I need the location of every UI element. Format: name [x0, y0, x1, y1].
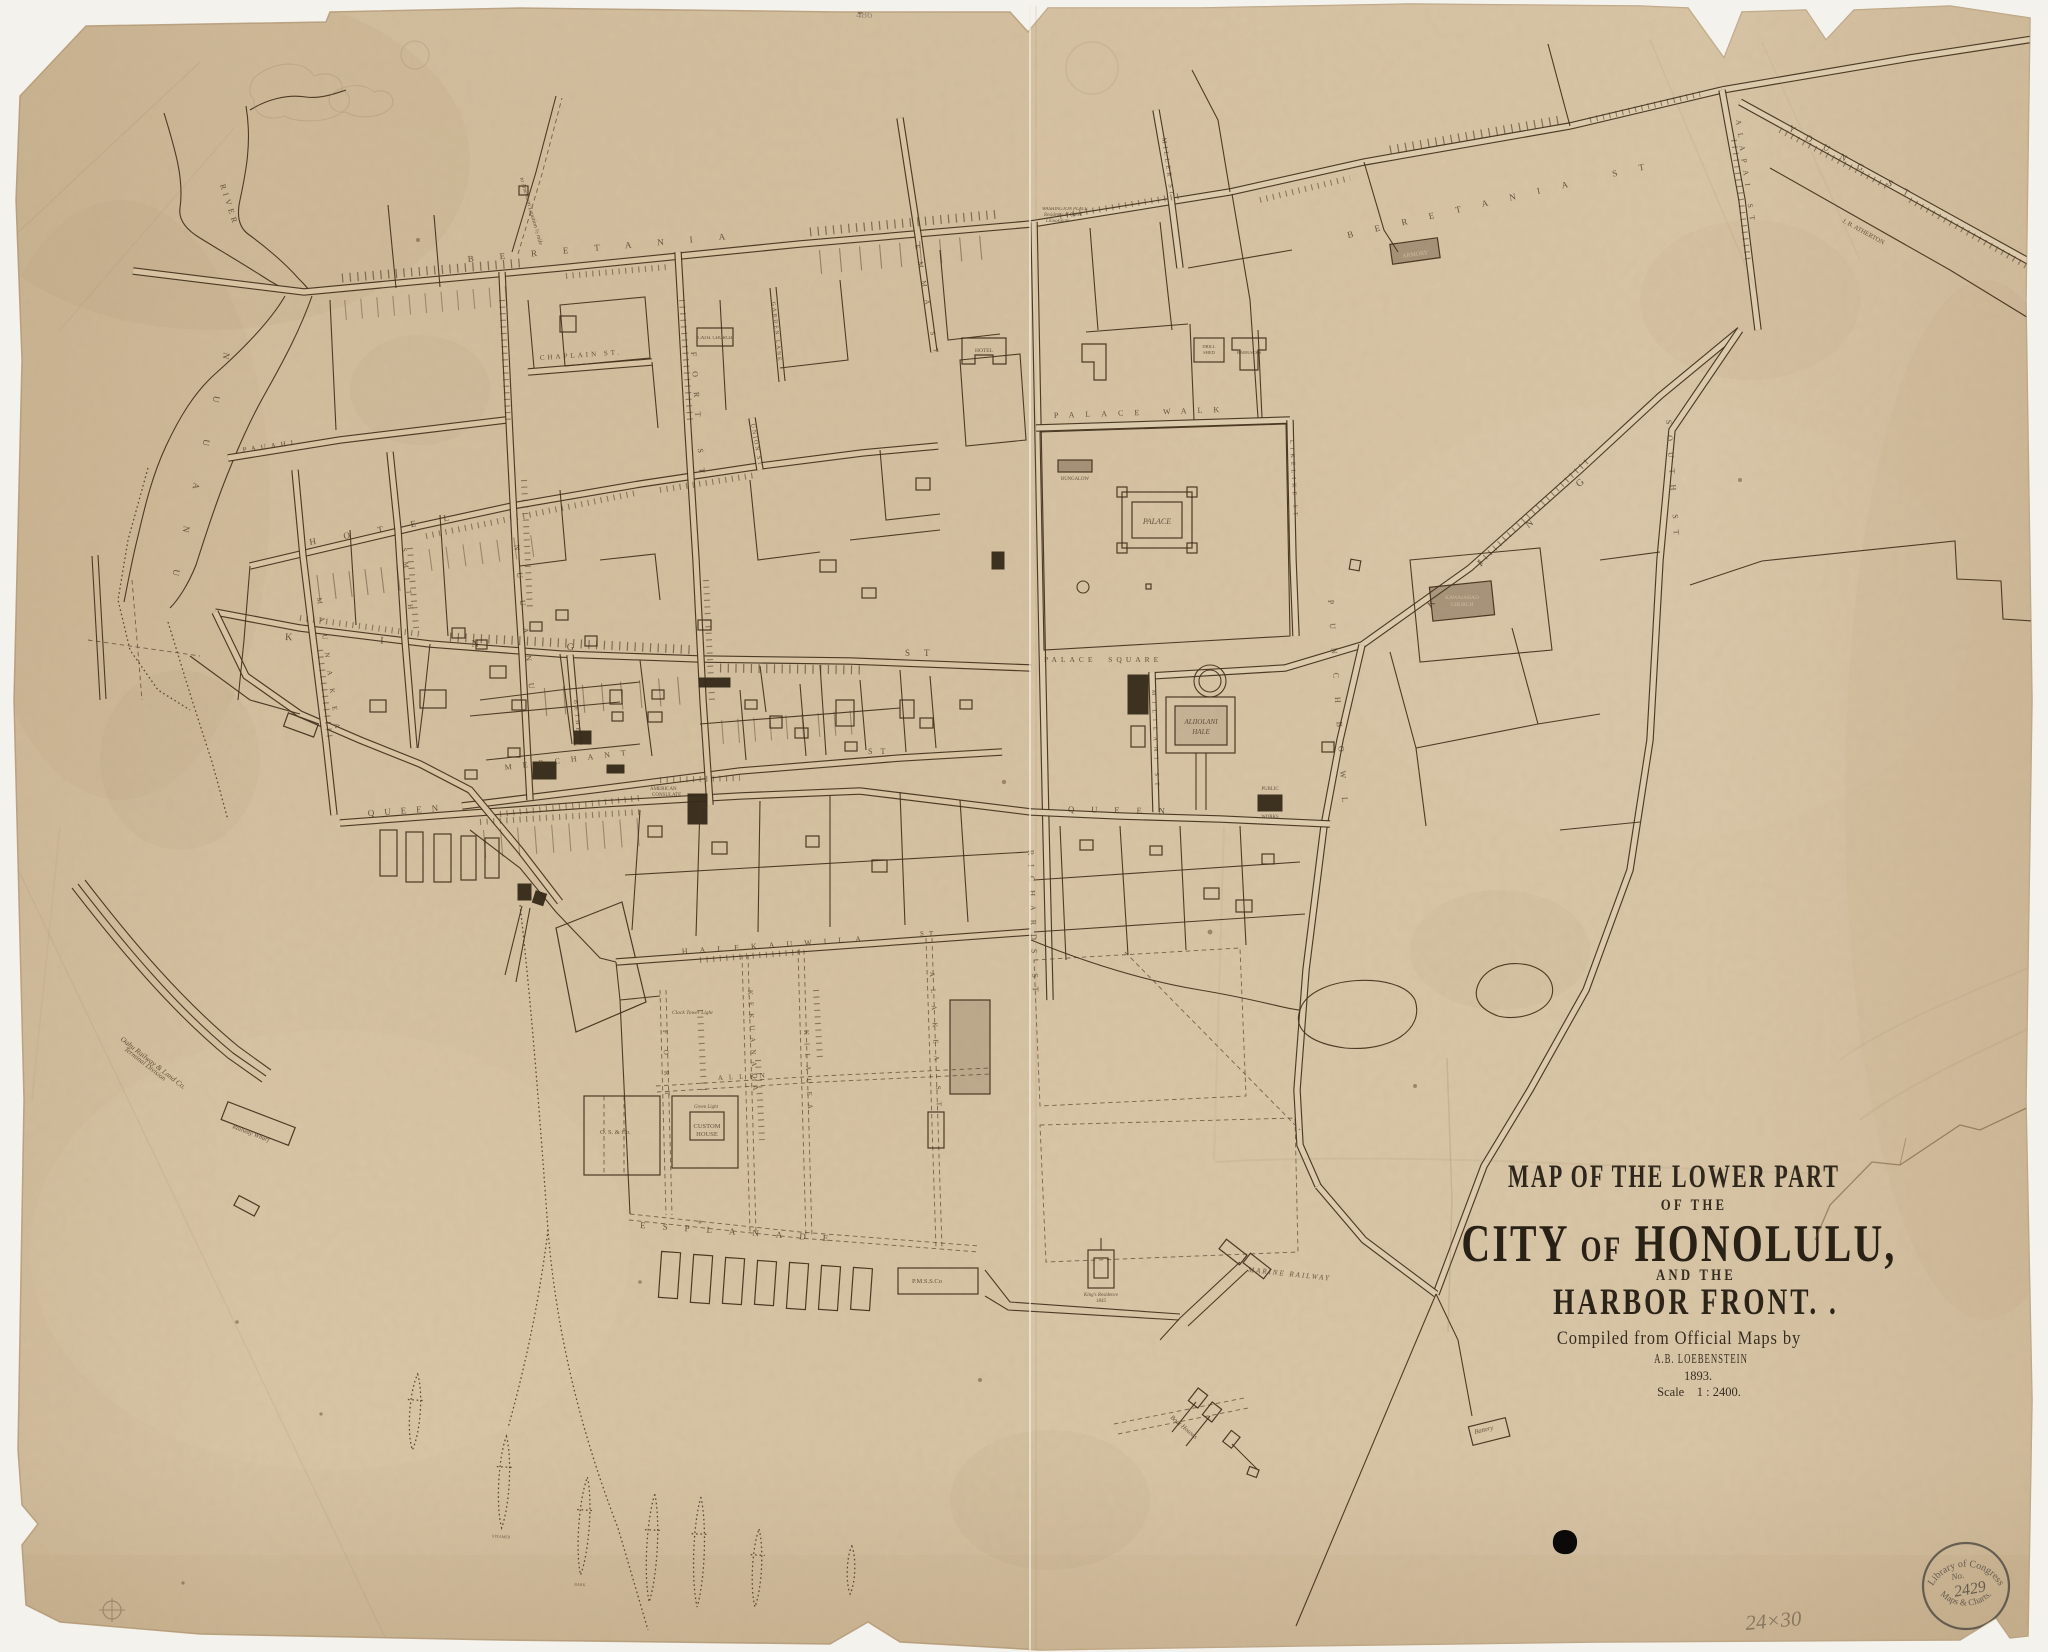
svg-text:CHURCH: CHURCH: [1451, 602, 1474, 608]
svg-text:WASHINGTON PLACE: WASHINGTON PLACE: [1042, 207, 1088, 212]
svg-text:CITY OF HONOLULU,: CITY OF HONOLULU,: [1461, 1215, 1896, 1274]
svg-text:ST: ST: [905, 648, 944, 658]
svg-text:QUEEN: QUEEN: [1068, 804, 1182, 816]
svg-text:1893.: 1893.: [1684, 1369, 1712, 1383]
svg-text:WORKS: WORKS: [1261, 815, 1279, 820]
svg-text:ST.: ST.: [920, 930, 944, 938]
svg-text:BARK: BARK: [574, 1581, 586, 1587]
svg-text:P.M.S.S.Co: P.M.S.S.Co: [912, 1278, 942, 1285]
svg-text:HALE: HALE: [1191, 728, 1210, 736]
svg-text:HARBOR FRONT. .: HARBOR FRONT. .: [1553, 1282, 1839, 1323]
svg-text:ALIIOLANI: ALIIOLANI: [1183, 718, 1218, 726]
svg-text:Clock Tower Light: Clock Tower Light: [672, 1010, 713, 1016]
svg-text:Scale 1 : 2400.: Scale 1 : 2400.: [1657, 1385, 1741, 1399]
svg-text:BUNGALOW: BUNGALOW: [1061, 477, 1089, 482]
svg-text:KAWAIAHAO: KAWAIAHAO: [1445, 595, 1479, 601]
svg-text:Compiled from Official Maps by: Compiled from Official Maps by: [1557, 1327, 1801, 1348]
svg-text:DRILL: DRILL: [1202, 344, 1215, 349]
svg-text:O. S. & Co.: O. S. & Co.: [600, 1129, 631, 1136]
svg-text:STEAMER: STEAMER: [492, 1533, 511, 1539]
svg-text:SHED: SHED: [1203, 350, 1216, 355]
svg-text:HOUSE: HOUSE: [696, 1131, 718, 1138]
svg-text:1845: 1845: [1096, 1299, 1107, 1304]
svg-text:PUBLIC: PUBLIC: [1261, 787, 1278, 792]
svg-text:ST: ST: [868, 747, 893, 756]
svg-text:PALACE SQUARE: PALACE SQUARE: [1044, 655, 1162, 664]
svg-text:MAP OF THE LOWER PART: MAP OF THE LOWER PART: [1508, 1159, 1840, 1195]
svg-text:AMERICAN: AMERICAN: [650, 787, 677, 792]
svg-text:CUSTOM: CUSTOM: [694, 1123, 721, 1130]
svg-text:Green Light: Green Light: [694, 1105, 719, 1110]
svg-text:24×30: 24×30: [1744, 1606, 1803, 1635]
svg-text:Liliuokalani: Liliuokalani: [1045, 219, 1070, 224]
svg-text:King's Residence: King's Residence: [1083, 1293, 1119, 1298]
svg-text:OF THE: OF THE: [1661, 1197, 1727, 1215]
svg-text:PALACE: PALACE: [1142, 517, 1171, 526]
svg-text:CONSULATE: CONSULATE: [652, 793, 681, 798]
svg-text:HOTEL: HOTEL: [975, 348, 994, 354]
svg-text:CATH. CHURCH: CATH. CHURCH: [698, 336, 733, 341]
svg-text:Residence of Queen: Residence of Queen: [1043, 213, 1083, 218]
svg-text:A.B. LOEBENSTEIN: A.B. LOEBENSTEIN: [1654, 1352, 1748, 1366]
svg-text:BARRACKS: BARRACKS: [1237, 350, 1262, 355]
